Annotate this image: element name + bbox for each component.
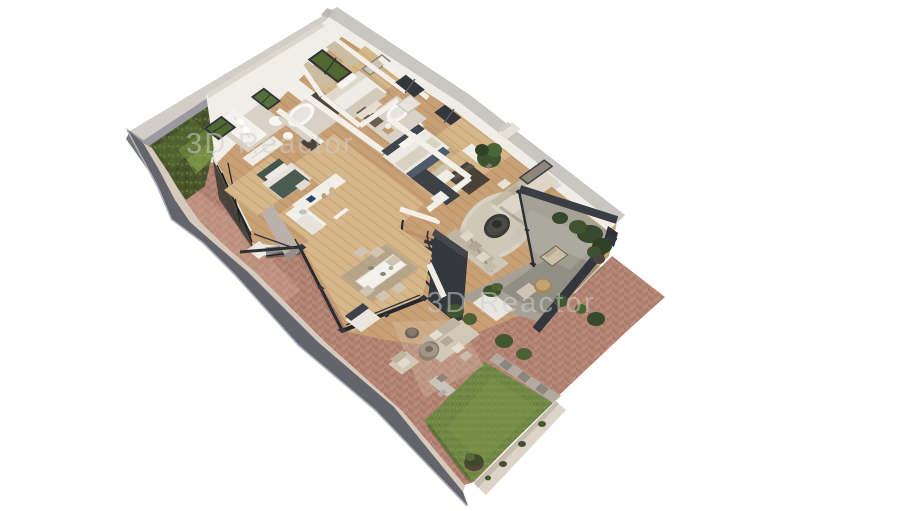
svg-text:3D Reactor: 3D Reactor	[186, 128, 355, 160]
svg-text:3D Reactor: 3D Reactor	[427, 287, 596, 319]
